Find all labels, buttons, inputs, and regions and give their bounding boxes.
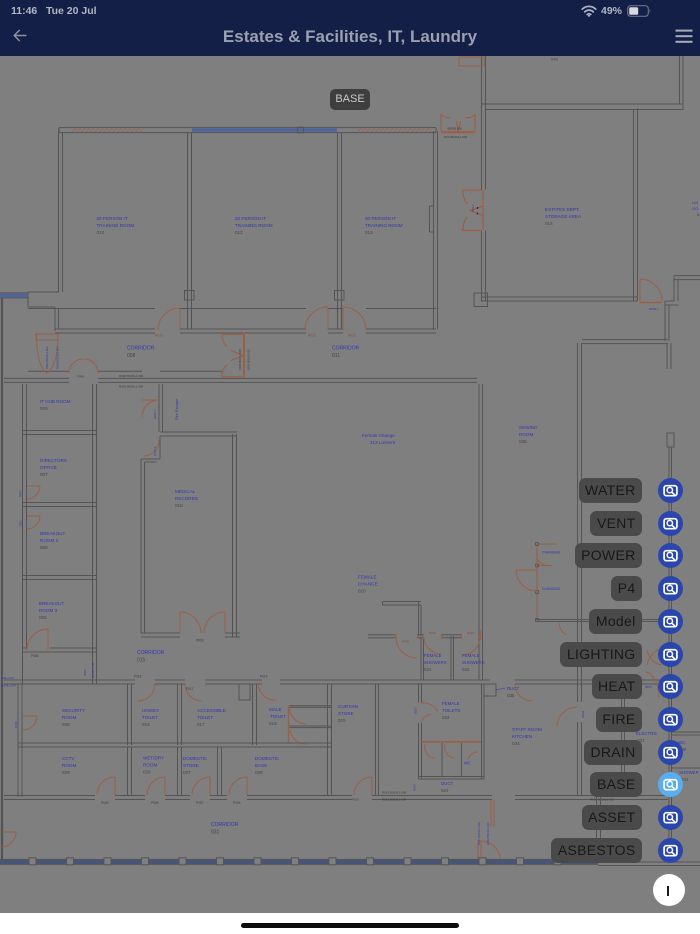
svg-text:R032 B019L1.010: R032 B019L1.010	[486, 822, 490, 845]
svg-text:R011B019L1.006: R011B019L1.006	[444, 135, 467, 139]
svg-text:FEMALE: FEMALE	[424, 653, 442, 658]
svg-text:026: 026	[255, 770, 263, 775]
svg-text:OFFICE: OFFICE	[40, 465, 57, 470]
svg-text:DUCT: DUCT	[441, 781, 454, 786]
svg-text:20 PERSON IT: 20 PERSON IT	[235, 216, 266, 221]
svg-text:R020: R020	[402, 640, 410, 644]
svg-text:028: 028	[143, 770, 151, 775]
svg-text:ROOM 2: ROOM 2	[40, 538, 59, 543]
svg-text:007: 007	[40, 472, 48, 477]
svg-text:R030: R030	[14, 721, 18, 728]
svg-text:R010: R010	[155, 334, 163, 338]
svg-text:011: 011	[332, 353, 340, 359]
svg-text:SHOWERS: SHOWERS	[424, 660, 447, 665]
svg-text:P027: P027	[196, 801, 204, 805]
svg-text:UNISEX: UNISEX	[142, 708, 159, 713]
svg-text:R051 B019L1.009: R051 B019L1.009	[382, 798, 407, 802]
svg-text:P029: P029	[101, 801, 109, 805]
svg-text:Female Change: Female Change	[362, 433, 395, 438]
svg-text:GO: GO	[692, 206, 698, 211]
svg-text:WET/DRY: WET/DRY	[143, 756, 164, 761]
svg-text:STORE: STORE	[183, 763, 199, 768]
svg-text:031: 031	[211, 830, 220, 836]
svg-text:035: 035	[507, 693, 515, 698]
svg-text:020: 020	[358, 589, 366, 594]
svg-text:CHANGING: CHANGING	[542, 587, 561, 591]
svg-text:CCTV: CCTV	[62, 756, 75, 761]
svg-text:BASE: BASE	[255, 763, 267, 768]
svg-text:009: 009	[40, 406, 48, 411]
svg-text:213 Lockers: 213 Lockers	[370, 440, 396, 445]
svg-text:MEDICAL: MEDICAL	[175, 489, 196, 494]
svg-text:CORRIDOR: CORRIDOR	[127, 346, 155, 352]
svg-text:R005: R005	[83, 669, 87, 676]
svg-text:034: 034	[512, 741, 520, 746]
svg-text:R015 B019L1.004: R015 B019L1.004	[119, 384, 144, 388]
svg-text:013: 013	[365, 230, 373, 235]
svg-text:R020.1: R020.1	[153, 410, 157, 419]
svg-text:005: 005	[39, 615, 47, 620]
svg-text:015: 015	[137, 658, 146, 664]
svg-text:R013: R013	[348, 334, 356, 338]
svg-text:TOILET: TOILET	[270, 714, 286, 719]
svg-text:006: 006	[40, 545, 48, 550]
svg-text:TOILETS: TOILETS	[442, 708, 460, 713]
svg-text:025: 025	[338, 718, 346, 723]
svg-text:BREAKOUT: BREAKOUT	[39, 601, 64, 606]
svg-text:R008 B019L1.003: R008 B019L1.003	[56, 346, 60, 369]
svg-text:WC: WC	[464, 761, 471, 766]
svg-text:ROOM: ROOM	[143, 763, 157, 768]
svg-text:R012: R012	[308, 334, 316, 338]
svg-text:P005: P005	[31, 654, 39, 658]
svg-text:KITCHEN: KITCHEN	[512, 734, 532, 739]
svg-text:RECORDS: RECORDS	[175, 496, 198, 501]
svg-text:R011 B019L1.005: R011 B019L1.005	[247, 349, 251, 370]
svg-text:MALE: MALE	[269, 707, 282, 712]
svg-text:R052 B019L1.011: R052 B019L1.011	[590, 798, 614, 802]
svg-text:023: 023	[442, 715, 450, 720]
svg-text:B019L1.007: B019L1.007	[1, 684, 17, 688]
svg-text:022: 022	[462, 667, 470, 672]
svg-text:018: 018	[175, 503, 183, 508]
svg-text:019L1.007: 019L1.007	[1, 676, 15, 680]
svg-text:R657: R657	[645, 685, 653, 689]
svg-text:R007: R007	[19, 490, 23, 497]
svg-text:R036.1: R036.1	[649, 307, 659, 311]
svg-text:BREAKOUT: BREAKOUT	[40, 531, 65, 536]
svg-text:DOMESTIC: DOMESTIC	[255, 756, 280, 761]
svg-text:ROOM: ROOM	[519, 432, 533, 437]
svg-text:R014: R014	[471, 204, 475, 212]
svg-text:DUCT: DUCT	[507, 686, 520, 691]
svg-text:ROOM 3: ROOM 3	[39, 608, 58, 613]
svg-text:R018.1: R018.1	[153, 447, 157, 456]
svg-text:R034: R034	[581, 710, 585, 718]
svg-text:ESTATES DEPT.: ESTATES DEPT.	[545, 207, 580, 212]
svg-text:FEMALE: FEMALE	[442, 701, 460, 706]
svg-text:P026: P026	[233, 801, 241, 805]
svg-text:FEMALE: FEMALE	[358, 575, 376, 580]
svg-text:P018: P018	[196, 639, 204, 643]
svg-text:P006: P006	[19, 520, 23, 527]
svg-text:019: 019	[269, 721, 277, 726]
svg-text:STORE: STORE	[338, 711, 354, 716]
svg-text:TOILET: TOILET	[142, 715, 158, 720]
svg-text:CORRIDOR: CORRIDOR	[211, 822, 239, 828]
svg-text:017: 017	[197, 722, 205, 727]
svg-text:TRAINING ROOM: TRAINING ROOM	[97, 223, 135, 228]
svg-text:Fire Escape: Fire Escape	[174, 398, 179, 420]
svg-text:008: 008	[127, 353, 136, 359]
svg-text:ACCESSIBLE: ACCESSIBLE	[197, 708, 226, 713]
svg-text:012: 012	[235, 230, 243, 235]
svg-text:R031 B019L1.010: R031 B019L1.010	[477, 822, 481, 845]
svg-text:036: 036	[519, 439, 527, 444]
svg-text:TRAINING ROOM: TRAINING ROOM	[235, 223, 273, 228]
svg-text:CHANGING: CHANGING	[542, 551, 561, 555]
svg-text:CURTAIN: CURTAIN	[338, 704, 358, 709]
svg-text:R034: R034	[413, 784, 417, 791]
svg-text:010: 010	[97, 230, 105, 235]
svg-text:B0042.006: B0042.006	[448, 126, 463, 130]
svg-text:FEMALE: FEMALE	[462, 653, 480, 658]
svg-text:CORRIDOR: CORRIDOR	[137, 650, 165, 656]
svg-text:016: 016	[142, 722, 150, 727]
svg-text:029: 029	[62, 770, 70, 775]
svg-text:CHANGE: CHANGE	[358, 582, 378, 587]
svg-text:P019: P019	[260, 675, 268, 679]
svg-text:027: 027	[183, 770, 191, 775]
svg-text:TRAINING ROOM: TRAINING ROOM	[365, 223, 403, 228]
svg-text:STAFF ROOM: STAFF ROOM	[512, 727, 542, 732]
svg-text:20 PERSON IT: 20 PERSON IT	[365, 216, 396, 221]
svg-text:P016: P016	[134, 675, 142, 679]
svg-text:ROOM: ROOM	[62, 763, 76, 768]
svg-text:ROOM: ROOM	[62, 715, 76, 720]
svg-text:R008 B019L1.005: R008 B019L1.005	[238, 349, 242, 370]
svg-text:P028: P028	[151, 801, 159, 805]
svg-text:R022: R022	[467, 631, 475, 635]
svg-text:20 PERSON IT: 20 PERSON IT	[97, 216, 128, 221]
svg-text:B019L1.008: B019L1.008	[91, 662, 95, 678]
svg-text:014: 014	[545, 221, 553, 226]
svg-text:R023: R023	[414, 707, 418, 714]
svg-text:021: 021	[424, 667, 432, 672]
svg-text:IT HUB ROOM: IT HUB ROOM	[40, 399, 71, 404]
svg-text:024: 024	[441, 788, 449, 793]
svg-text:DOMESTIC: DOMESTIC	[183, 756, 208, 761]
svg-text:SEWING: SEWING	[519, 425, 538, 430]
svg-text:P017: P017	[186, 687, 194, 691]
svg-text:R001 B019L1.003: R001 B019L1.003	[45, 346, 49, 369]
svg-text:R008 B019L1.004: R008 B019L1.004	[119, 374, 144, 378]
svg-text:049: 049	[551, 57, 558, 62]
svg-text:CORRIDOR: CORRIDOR	[332, 346, 360, 352]
svg-text:R021: R021	[429, 631, 437, 635]
svg-text:TOILET: TOILET	[197, 715, 213, 720]
svg-text:ELECTRIC: ELECTRIC	[636, 731, 658, 736]
svg-text:R015 B019L1.009: R015 B019L1.009	[382, 791, 407, 795]
svg-text:SECURITY: SECURITY	[62, 708, 85, 713]
svg-text:P025: P025	[352, 798, 359, 802]
svg-text:LIN: LIN	[692, 200, 698, 205]
svg-text:STORAGE AREA: STORAGE AREA	[545, 214, 582, 219]
svg-text:DIRECTORS: DIRECTORS	[40, 458, 67, 463]
svg-text:P009: P009	[77, 375, 84, 379]
svg-text:030: 030	[62, 722, 70, 727]
svg-text:SHOWERS: SHOWERS	[462, 660, 485, 665]
